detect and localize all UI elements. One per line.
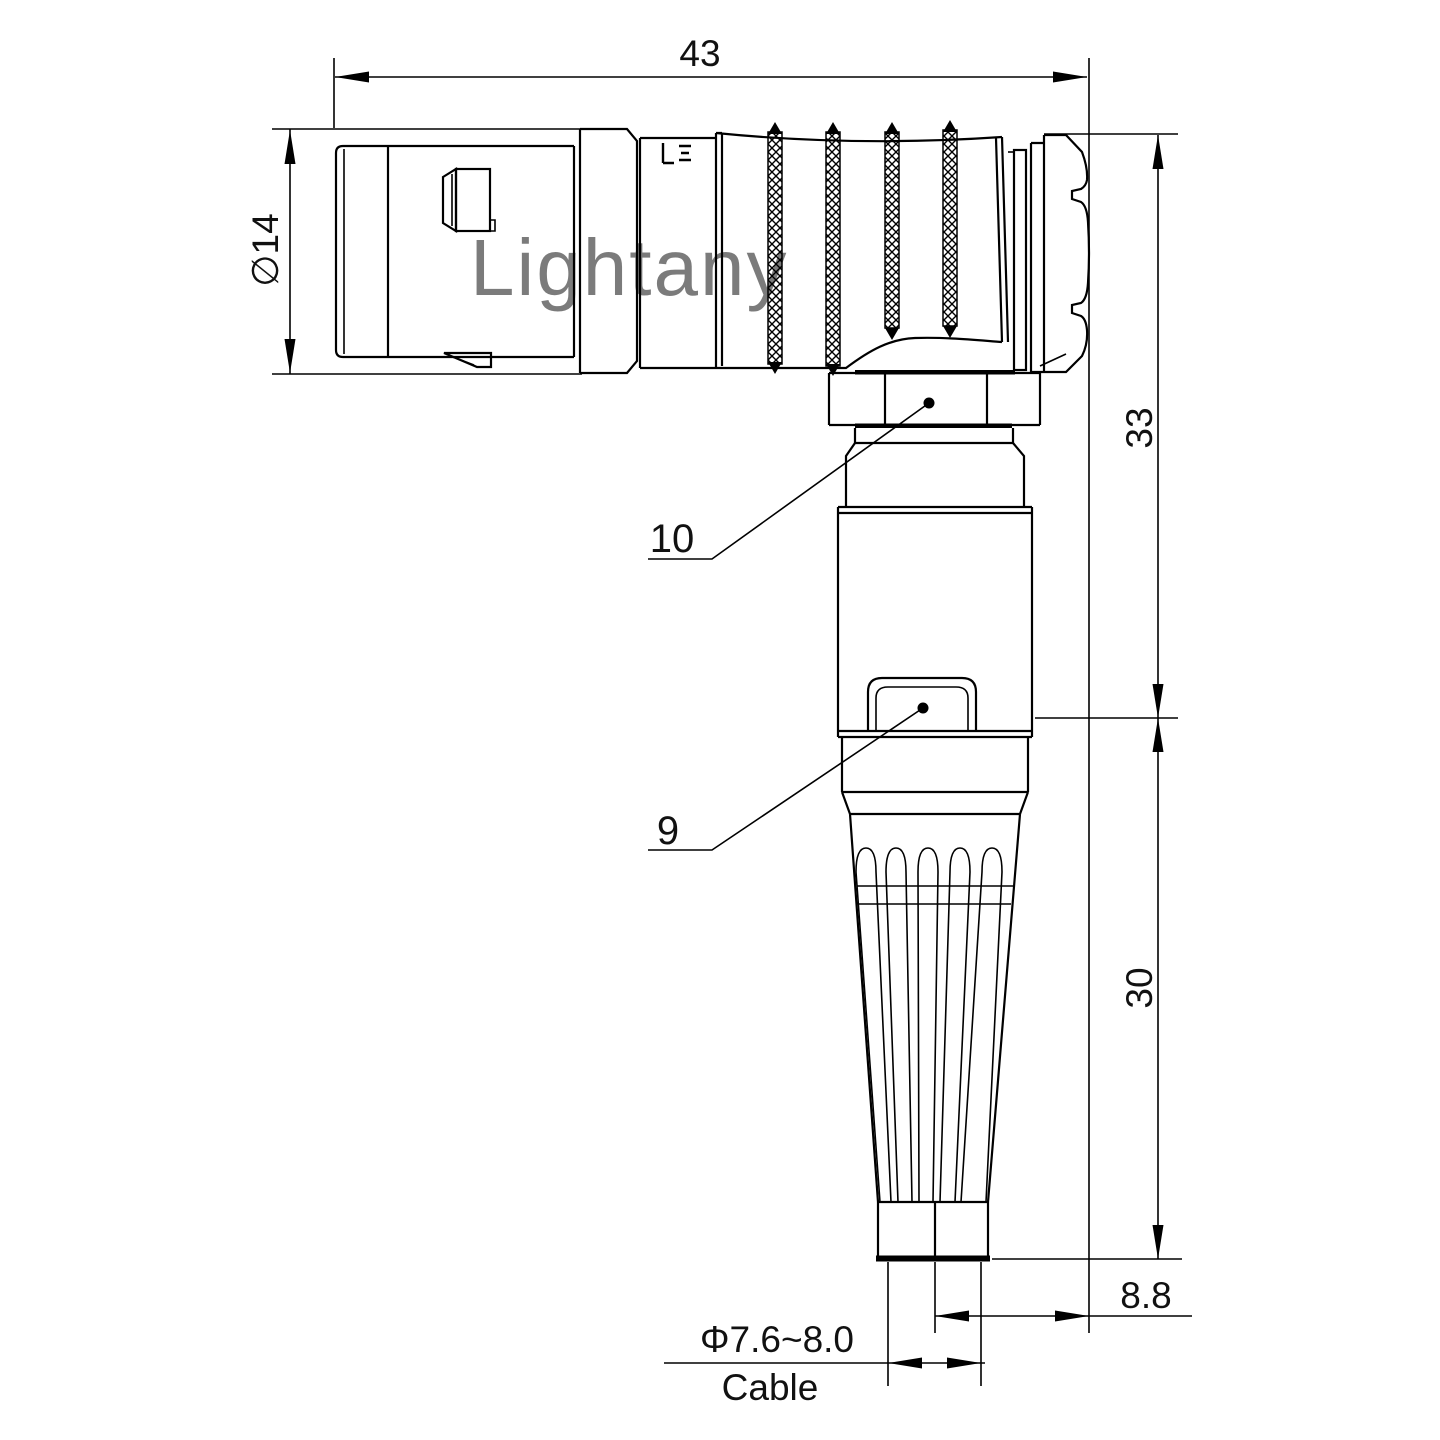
technical-drawing-page: Lightany (0, 0, 1440, 1440)
dimension-upper-height: 33 (1035, 134, 1178, 718)
strain-relief-boot (842, 737, 1028, 1202)
dim-shell-diameter-text: ∅14 (245, 213, 286, 286)
dimension-cable-offset: 8.8 (935, 1262, 1192, 1333)
dim-upper-height-text: 33 (1119, 407, 1160, 448)
cable-collar (876, 1202, 990, 1262)
leader-release-latch: 9 (648, 703, 929, 854)
dim-cable-diameter-text: Φ7.6~8.0 (700, 1319, 854, 1360)
washer (855, 428, 1013, 443)
rear-stop-plate (1008, 150, 1026, 370)
guide-key-tab (443, 169, 495, 231)
end-cap (1031, 135, 1089, 372)
dimension-cable-diameter: Φ7.6~8.0 Cable (664, 1262, 985, 1408)
leader-dot-latch (918, 703, 929, 714)
cable-label-text: Cable (722, 1367, 819, 1408)
upper-collar (846, 443, 1024, 507)
dim-cable-offset-text: 8.8 (1120, 1275, 1171, 1316)
part-label-9: 9 (657, 809, 679, 853)
leader-dot-nut (924, 398, 935, 409)
keyway-notch (444, 353, 491, 367)
knurl-band (885, 122, 899, 340)
dimension-boot-height: 30 (992, 718, 1182, 1259)
dim-overall-length-text: 43 (679, 33, 720, 74)
knurl-band (943, 120, 957, 338)
knurl-band (768, 122, 782, 374)
logo-engraving (663, 143, 691, 163)
knurl-band (826, 122, 840, 376)
elbow-hex-nut (829, 370, 1040, 428)
part-label-10: 10 (650, 517, 695, 561)
leader-coupling-nut: 10 (648, 398, 935, 562)
watermark: Lightany (470, 223, 788, 312)
dim-boot-height-text: 30 (1119, 967, 1160, 1008)
connector-dimension-drawing: Lightany (0, 0, 1440, 1440)
